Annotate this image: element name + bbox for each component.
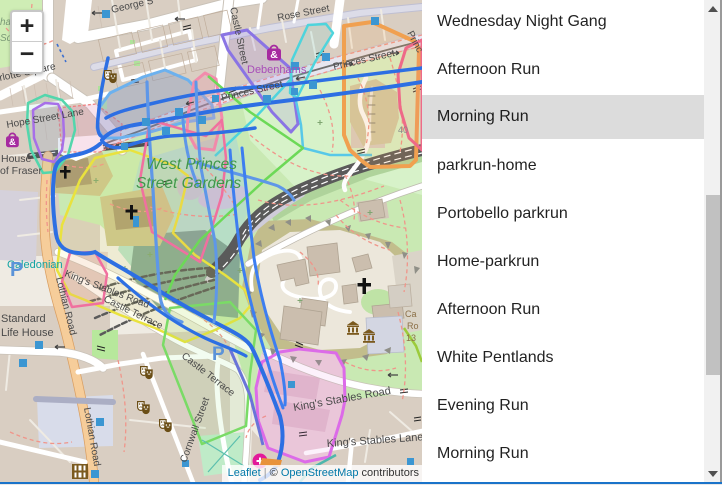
svg-text:Street Gardens: Street Gardens — [136, 175, 241, 192]
svg-text:40: 40 — [398, 125, 408, 135]
svg-text:P: P — [212, 344, 225, 365]
svg-text:Ro: Ro — [407, 321, 419, 331]
svg-text:P: P — [10, 259, 23, 281]
svg-text:Standard: Standard — [1, 313, 46, 325]
svg-text:13: 13 — [406, 333, 416, 343]
svg-text:Debenhams: Debenhams — [247, 64, 307, 76]
svg-text:West Princes: West Princes — [146, 156, 237, 173]
svg-text:Life House: Life House — [1, 327, 54, 339]
svg-text:of Fraser: of Fraser — [0, 165, 43, 177]
svg-text:&: & — [9, 137, 16, 148]
svg-text:&: & — [270, 49, 278, 61]
svg-text:House: House — [1, 153, 32, 165]
svg-text:Ca: Ca — [405, 309, 417, 319]
